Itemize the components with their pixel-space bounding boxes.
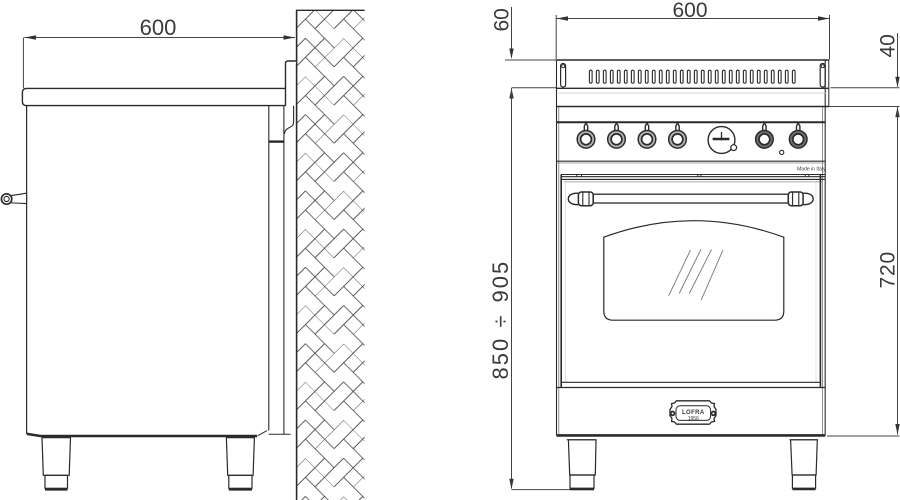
svg-text:600: 600 xyxy=(140,15,177,40)
svg-text:1956: 1956 xyxy=(688,416,699,422)
svg-text:40: 40 xyxy=(877,34,900,57)
svg-text:850: 850 xyxy=(488,337,513,380)
svg-text:Made in Italy: Made in Italy xyxy=(797,167,826,173)
svg-text:905: 905 xyxy=(488,260,513,303)
svg-text:720: 720 xyxy=(877,251,900,288)
svg-text:60: 60 xyxy=(491,8,514,31)
svg-text:÷: ÷ xyxy=(488,315,513,327)
